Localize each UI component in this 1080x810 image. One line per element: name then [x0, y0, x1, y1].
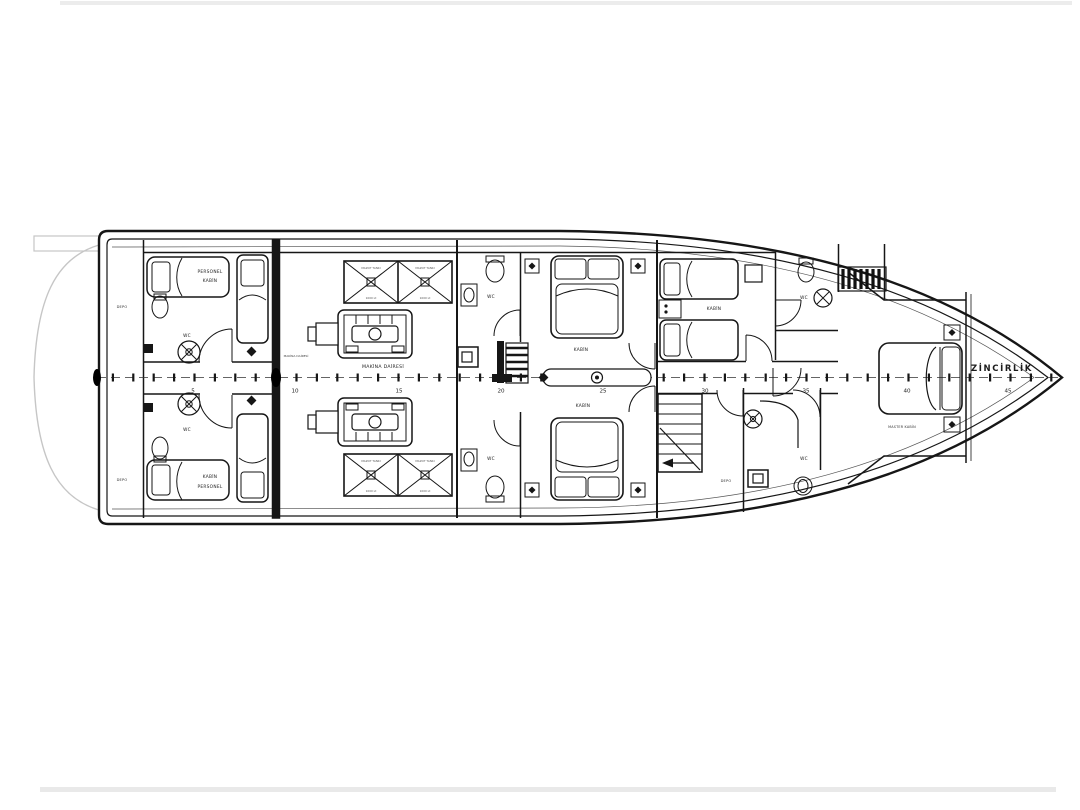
crew-cabin-label-1: PERSONEL: [197, 269, 222, 275]
deck-plan-drawing: 5 10 15 20 25 30 35 40 45 DEPO DEPO PERS…: [0, 0, 1080, 810]
tank-label: MAZOT TANKI: [415, 459, 434, 463]
tank-label: MAZOT TANKI: [415, 266, 434, 270]
wc-label: WC: [183, 427, 191, 433]
keel-bolt-dot: [595, 376, 599, 380]
tank-capacity: 1000 Lt: [366, 296, 378, 300]
tank-capacity: 1000 Lt: [420, 296, 432, 300]
wc-label: WC: [487, 456, 495, 462]
crew-cabin-label-2: PERSONEL: [197, 484, 222, 490]
yacht-deck-plan: 5 10 15 20 25 30 35 40 45 DEPO DEPO PERS…: [0, 0, 1080, 810]
scan-artifact-bottom: [40, 787, 1056, 792]
cabin-label: KABİN: [574, 346, 589, 353]
engine-room-note: MAKİNA DAİRESİ: [284, 353, 309, 358]
ruler-number-40: 40: [903, 389, 911, 395]
master-cabin-label: MASTER KABİN: [888, 424, 916, 429]
nightstand-dot: [664, 310, 667, 313]
depo-label-mid: DEPO: [721, 479, 732, 483]
wc-label: WC: [800, 456, 808, 462]
scan-artifact-top: [60, 1, 1072, 5]
engine-room-label: MAKİNA DAİRESİ: [362, 363, 404, 370]
depo-label-bottom: DEPO: [117, 478, 128, 482]
wc-label: WC: [183, 333, 191, 339]
ruler-number-10: 10: [291, 389, 299, 395]
nightstand-dot: [664, 304, 667, 307]
cabin-label: KABİN: [576, 402, 591, 409]
tank-capacity: 1000 Lt: [366, 489, 378, 493]
locker-block: [144, 344, 153, 353]
locker-block: [144, 403, 153, 412]
ladder-treads: [843, 269, 879, 289]
chain-locker: ZİNCİRLİK: [971, 363, 1033, 374]
crew-cabin-label-2: KABİN: [203, 277, 218, 284]
cabin-label: KABİN: [707, 305, 722, 312]
ruler-number-45: 45: [1004, 389, 1012, 395]
ruler-number-15: 15: [395, 389, 403, 395]
station-marker: [271, 368, 281, 387]
station-marker: [93, 369, 101, 386]
depo-label-top: DEPO: [117, 305, 128, 309]
crew-cabin-label-1: KABİN: [203, 473, 218, 480]
wc-label: WC: [487, 294, 495, 300]
tank-capacity: 1000 Lt: [420, 489, 432, 493]
ruler-number-20: 20: [497, 389, 505, 395]
swim-platform: [34, 236, 100, 510]
keel-block: [492, 374, 512, 382]
tank-label: MAZOT TANKI: [361, 459, 380, 463]
ruler-number-25: 25: [599, 389, 607, 395]
chain-locker-label: ZİNCİRLİK: [971, 363, 1033, 374]
tank-label: MAZOT TANKI: [361, 266, 380, 270]
